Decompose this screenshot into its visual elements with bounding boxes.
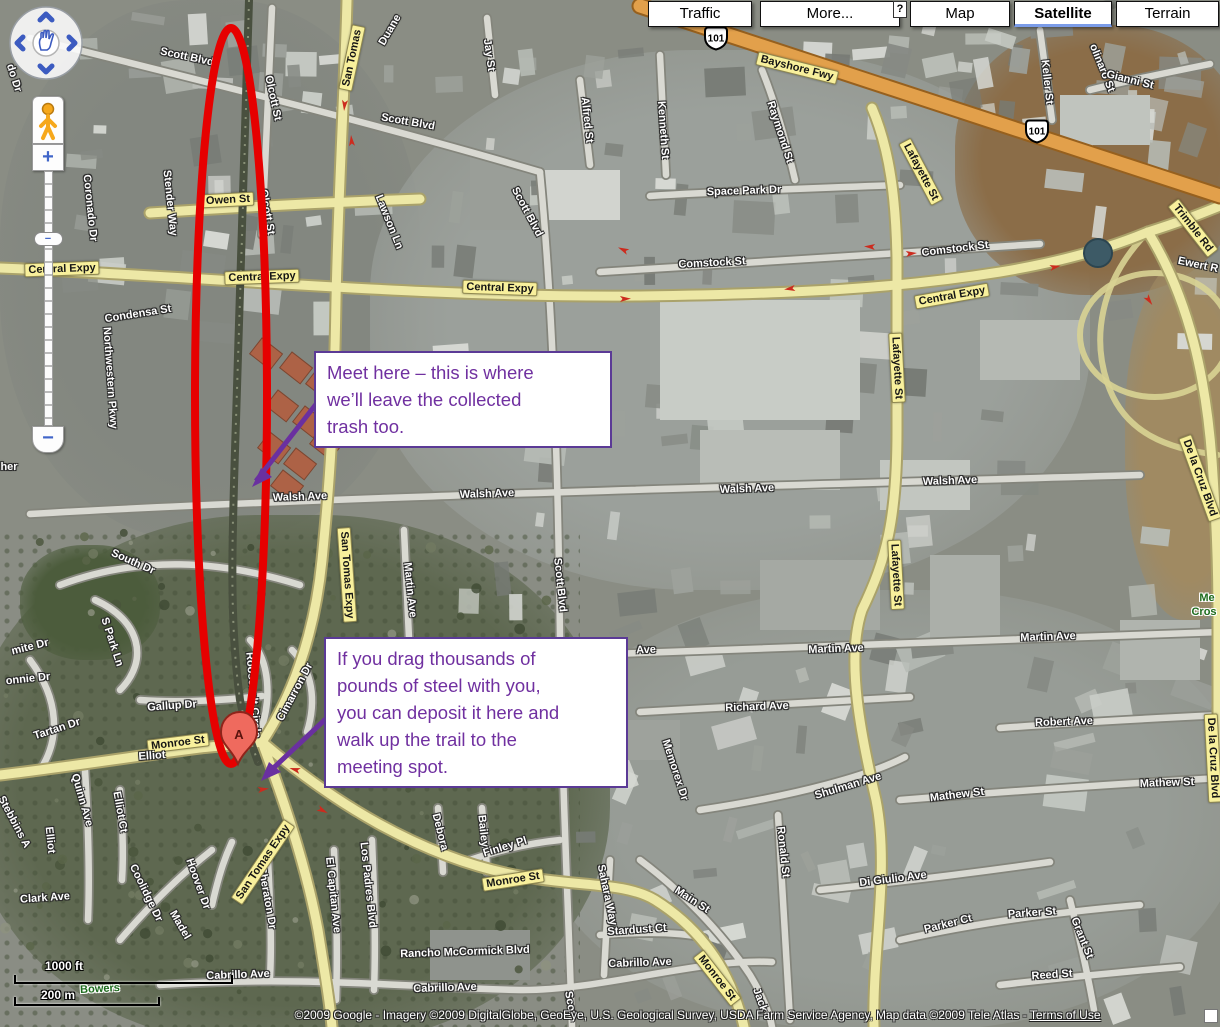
map-canvas[interactable]: Scott BlvdOlcott StScott BlvdOlcott StSa… [0, 0, 1220, 1027]
street-label: Ave [636, 644, 656, 657]
pegman-icon [33, 100, 63, 142]
scale-feet-bar [14, 975, 233, 984]
pan-control[interactable] [6, 3, 86, 85]
street-label: Richard Ave [725, 700, 789, 714]
street-label: Cros [1191, 606, 1216, 618]
copyright-bar: ©2009 Google - Imagery ©2009 DigitalGlob… [205, 1008, 1190, 1022]
scale-meters-bar [14, 997, 160, 1006]
help-badge[interactable]: ? [893, 1, 907, 18]
route-shield-101: 101 [1022, 117, 1052, 149]
zoom-out-button[interactable]: − [32, 426, 64, 453]
callout-meeting-spot: Meet here – this is where we’ll leave th… [314, 351, 612, 448]
pan-center-hand-icon[interactable] [33, 30, 59, 56]
street-label: Mathew St [1140, 776, 1195, 790]
satellite-map-layer [0, 0, 1220, 1027]
pond [1084, 239, 1112, 267]
satellite-view-button[interactable]: Satellite [1014, 1, 1112, 27]
traffic-button[interactable]: Traffic [648, 1, 752, 27]
street-label: Robert Ave [1035, 715, 1093, 729]
street-label: Me [1199, 592, 1214, 604]
street-label: Walsh Ave [273, 490, 328, 504]
street-label: Walsh Ave [460, 487, 515, 501]
route-shield-101: 101 [701, 24, 731, 56]
zoom-slider-handle[interactable]: − [34, 232, 63, 246]
street-label: Elliot [138, 749, 166, 763]
street-label: Walsh Ave [720, 482, 775, 496]
zoom-slider-track[interactable]: − [44, 171, 53, 426]
terrain-view-button[interactable]: Terrain [1116, 1, 1219, 27]
pegman-street-view-button[interactable] [32, 96, 64, 144]
more-button[interactable]: More... [760, 1, 900, 27]
bottom-right-widget[interactable] [1204, 1009, 1218, 1023]
svg-text:101: 101 [1029, 127, 1046, 138]
street-label: Bowers [80, 982, 120, 996]
street-label: Martin Ave [808, 642, 864, 656]
street-label: Central Expy [462, 280, 538, 297]
terms-of-use-link[interactable]: Terms of Use [1030, 1008, 1101, 1022]
map-view-button[interactable]: Map [910, 1, 1010, 27]
street-label: Martin Ave [1020, 630, 1076, 644]
copyright-text: ©2009 Google - Imagery ©2009 DigitalGlob… [294, 1008, 1029, 1022]
scale-feet-label: 1000 ft [45, 959, 83, 973]
callout-deposit-steel: If you drag thousands of pounds of steel… [324, 637, 628, 788]
street-label: Cabrillo Ave [413, 981, 477, 995]
zoom-control: + − − [32, 96, 64, 453]
zoom-in-button[interactable]: + [32, 144, 64, 171]
street-label: her [0, 461, 17, 473]
street-label: Walsh Ave [923, 474, 978, 488]
street-label: Cabrillo Ave [608, 956, 672, 970]
street-label: Owen St [202, 192, 255, 209]
street-label: Central Expy [224, 269, 300, 286]
svg-text:101: 101 [708, 34, 725, 45]
